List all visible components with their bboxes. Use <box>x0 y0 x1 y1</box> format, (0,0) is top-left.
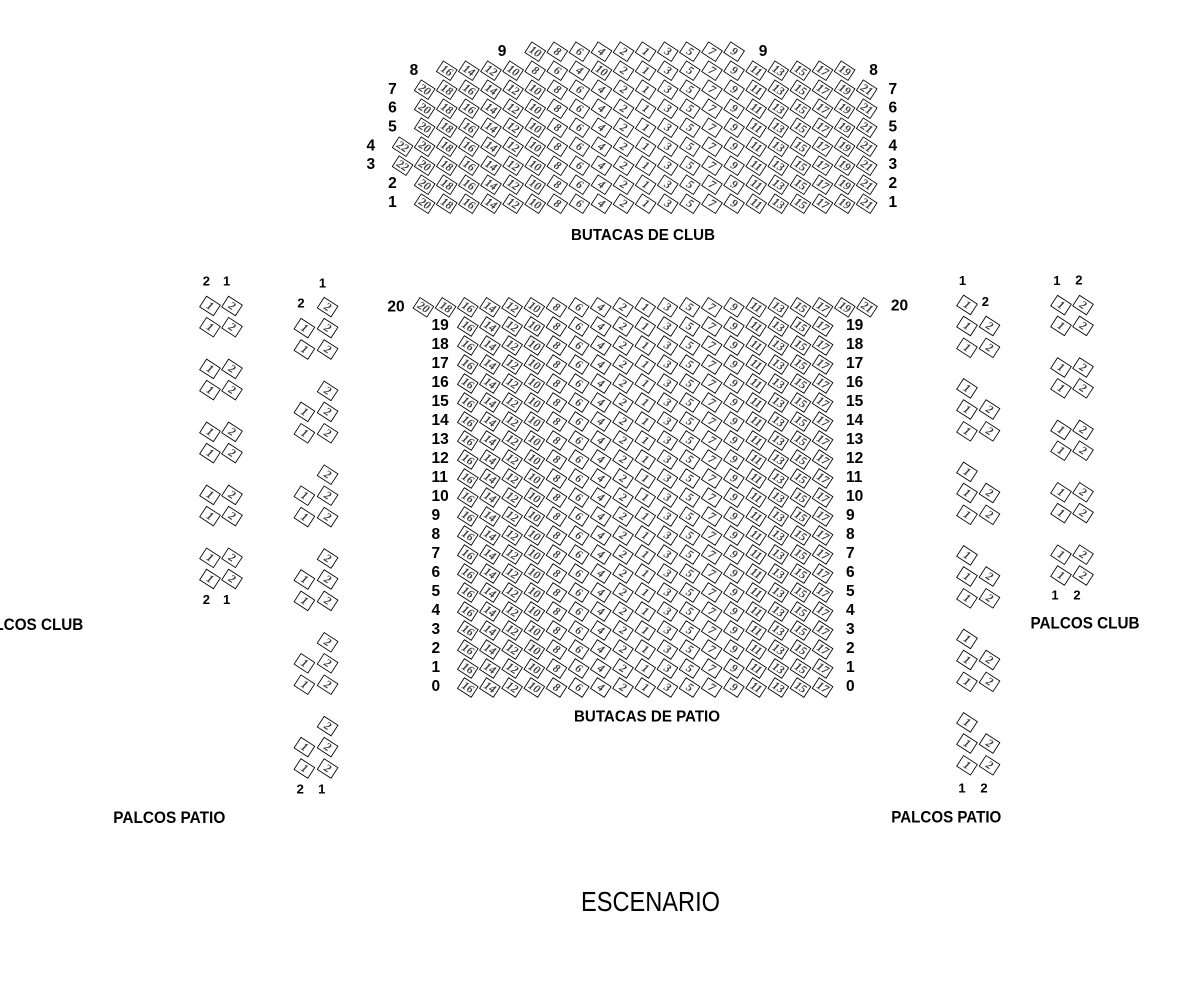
svg-text:14: 14 <box>432 412 450 429</box>
svg-text:2: 2 <box>1075 273 1082 288</box>
svg-text:2: 2 <box>203 592 210 607</box>
svg-text:2: 2 <box>1073 588 1080 603</box>
svg-text:9: 9 <box>432 507 441 524</box>
svg-text:12: 12 <box>846 450 863 467</box>
svg-text:8: 8 <box>846 526 855 543</box>
svg-text:1: 1 <box>1051 588 1058 603</box>
svg-text:9: 9 <box>498 43 507 60</box>
svg-text:BUTACAS DE PATIO: BUTACAS DE PATIO <box>574 708 720 725</box>
svg-text:1: 1 <box>432 659 441 676</box>
svg-text:PALCOS CLUB: PALCOS CLUB <box>1031 613 1140 632</box>
svg-text:ESCENARIO: ESCENARIO <box>581 886 720 917</box>
svg-text:13: 13 <box>846 431 864 448</box>
svg-text:16: 16 <box>846 374 864 391</box>
svg-text:5: 5 <box>888 119 897 136</box>
svg-text:5: 5 <box>432 583 441 600</box>
svg-text:1: 1 <box>223 274 230 289</box>
svg-text:BUTACAS DE CLUB: BUTACAS DE CLUB <box>571 227 715 244</box>
svg-text:2: 2 <box>203 274 210 289</box>
svg-text:1: 1 <box>318 782 325 797</box>
svg-text:PALCOS CLUB: PALCOS CLUB <box>0 615 83 634</box>
svg-text:1: 1 <box>959 273 966 288</box>
svg-text:1: 1 <box>319 276 326 291</box>
svg-text:16: 16 <box>432 374 450 391</box>
svg-text:PALCOS PATIO: PALCOS PATIO <box>113 808 225 827</box>
svg-text:3: 3 <box>432 621 441 638</box>
svg-text:2: 2 <box>980 781 987 796</box>
svg-text:7: 7 <box>388 81 397 98</box>
svg-text:15: 15 <box>432 393 450 410</box>
svg-text:12: 12 <box>432 450 449 467</box>
svg-text:0: 0 <box>432 678 441 695</box>
svg-text:2: 2 <box>297 296 304 311</box>
svg-text:8: 8 <box>869 62 878 79</box>
svg-text:1: 1 <box>958 781 965 796</box>
svg-text:18: 18 <box>846 336 864 353</box>
svg-text:15: 15 <box>846 393 864 410</box>
svg-text:17: 17 <box>846 355 863 372</box>
svg-text:6: 6 <box>432 564 441 581</box>
svg-text:0: 0 <box>846 678 855 695</box>
svg-text:7: 7 <box>888 81 897 98</box>
svg-text:3: 3 <box>846 621 855 638</box>
svg-text:19: 19 <box>432 317 450 334</box>
svg-text:11: 11 <box>846 469 863 486</box>
svg-text:3: 3 <box>366 156 375 173</box>
svg-text:14: 14 <box>846 412 864 429</box>
svg-text:1: 1 <box>846 659 855 676</box>
svg-text:6: 6 <box>888 100 897 117</box>
svg-text:1: 1 <box>888 194 897 211</box>
svg-text:1: 1 <box>223 592 230 607</box>
svg-text:4: 4 <box>846 602 855 619</box>
svg-text:2: 2 <box>297 782 304 797</box>
svg-text:6: 6 <box>388 100 397 117</box>
svg-text:9: 9 <box>759 43 768 60</box>
svg-text:1: 1 <box>1053 273 1060 288</box>
svg-text:13: 13 <box>432 431 450 448</box>
svg-text:8: 8 <box>410 62 419 79</box>
svg-text:5: 5 <box>846 583 855 600</box>
svg-text:PALCOS PATIO: PALCOS PATIO <box>891 808 1001 827</box>
svg-text:4: 4 <box>366 137 375 154</box>
svg-text:2: 2 <box>388 175 397 192</box>
svg-text:17: 17 <box>432 355 449 372</box>
svg-text:2: 2 <box>846 640 855 657</box>
svg-text:10: 10 <box>432 488 449 505</box>
svg-text:3: 3 <box>888 156 897 173</box>
svg-text:6: 6 <box>846 564 855 581</box>
svg-text:7: 7 <box>846 545 855 562</box>
svg-text:9: 9 <box>846 507 855 524</box>
svg-text:2: 2 <box>432 640 441 657</box>
svg-text:4: 4 <box>432 602 441 619</box>
svg-text:11: 11 <box>432 469 449 486</box>
svg-text:4: 4 <box>888 137 897 154</box>
svg-text:10: 10 <box>846 488 863 505</box>
svg-text:5: 5 <box>388 119 397 136</box>
svg-text:20: 20 <box>387 299 404 316</box>
svg-text:2: 2 <box>982 294 989 309</box>
svg-text:20: 20 <box>891 298 908 315</box>
svg-text:2: 2 <box>888 175 897 192</box>
svg-text:8: 8 <box>432 526 441 543</box>
svg-text:18: 18 <box>432 336 450 353</box>
svg-text:1: 1 <box>388 194 397 211</box>
svg-text:7: 7 <box>432 545 441 562</box>
svg-text:19: 19 <box>846 317 864 334</box>
